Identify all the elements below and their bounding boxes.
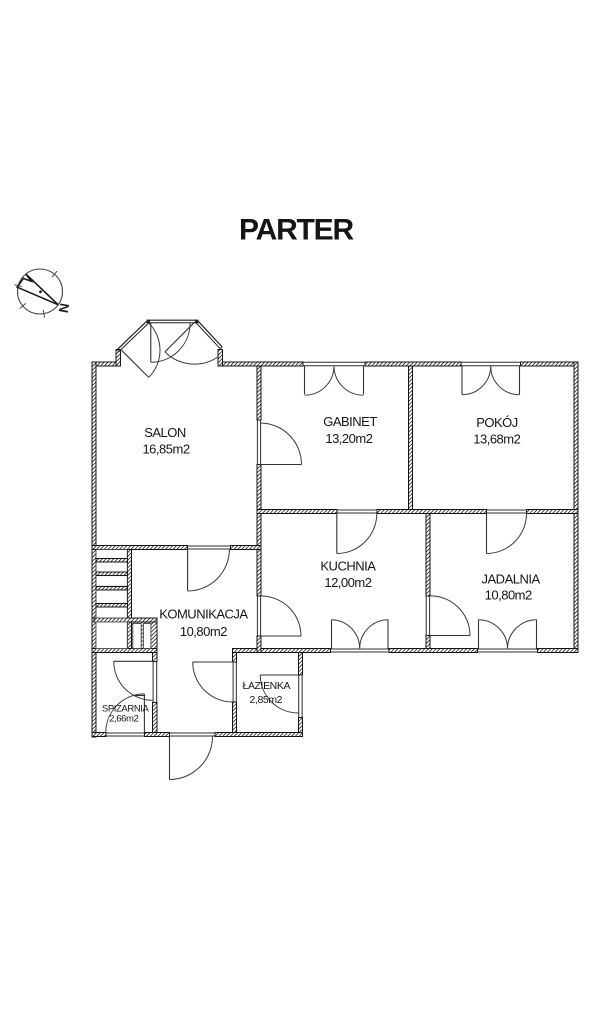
svg-text:PARTER: PARTER	[239, 214, 354, 247]
svg-text:N: N	[56, 302, 72, 314]
svg-text:2,85m2: 2,85m2	[249, 694, 282, 706]
svg-text:KUCHNIA: KUCHNIA	[320, 558, 376, 573]
svg-text:ŁAZIENKA: ŁAZIENKA	[243, 680, 291, 692]
svg-text:13,20m2: 13,20m2	[325, 431, 372, 446]
svg-text:KOMUNIKACJA: KOMUNIKACJA	[159, 607, 248, 622]
svg-text:SPIZARNIA: SPIZARNIA	[102, 703, 150, 714]
svg-text:POKÓJ: POKÓJ	[476, 415, 518, 430]
svg-text:10,80m2: 10,80m2	[485, 588, 532, 603]
svg-text:SALON: SALON	[144, 425, 186, 440]
svg-text:2,66m2: 2,66m2	[109, 714, 138, 725]
svg-text:JADALNIA: JADALNIA	[482, 571, 541, 586]
svg-text:GABINET: GABINET	[323, 414, 377, 429]
svg-text:13,68m2: 13,68m2	[473, 432, 520, 447]
svg-text:10,80m2: 10,80m2	[180, 624, 227, 639]
svg-text:16,85m2: 16,85m2	[142, 441, 189, 456]
svg-text:12,00m2: 12,00m2	[324, 575, 371, 590]
